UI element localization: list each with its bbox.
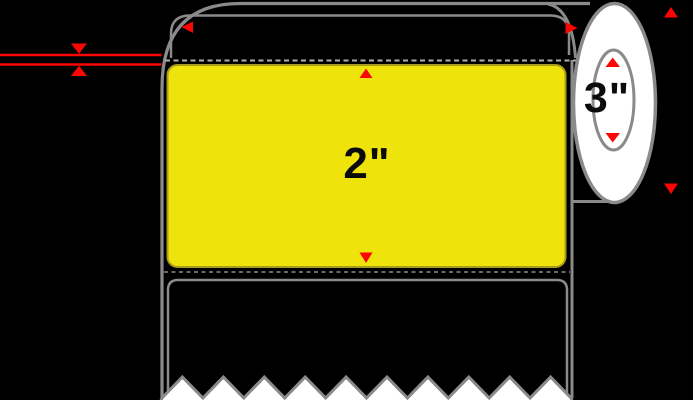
label-roll-diagram-svg: 2" 3" xyxy=(0,0,693,400)
gap-arrow-up-icon xyxy=(71,66,87,76)
od-arrow-down-icon xyxy=(664,184,678,195)
liner-tear-edge xyxy=(160,377,573,400)
label-height-text: 2" xyxy=(343,139,390,188)
top-face-outline xyxy=(171,16,569,59)
od-arrow-up-icon xyxy=(664,7,678,18)
gap-arrow-down-icon xyxy=(71,44,87,54)
label-roll-diagram: 2" 3" xyxy=(0,0,693,400)
core-diameter-text: 3" xyxy=(584,74,630,122)
